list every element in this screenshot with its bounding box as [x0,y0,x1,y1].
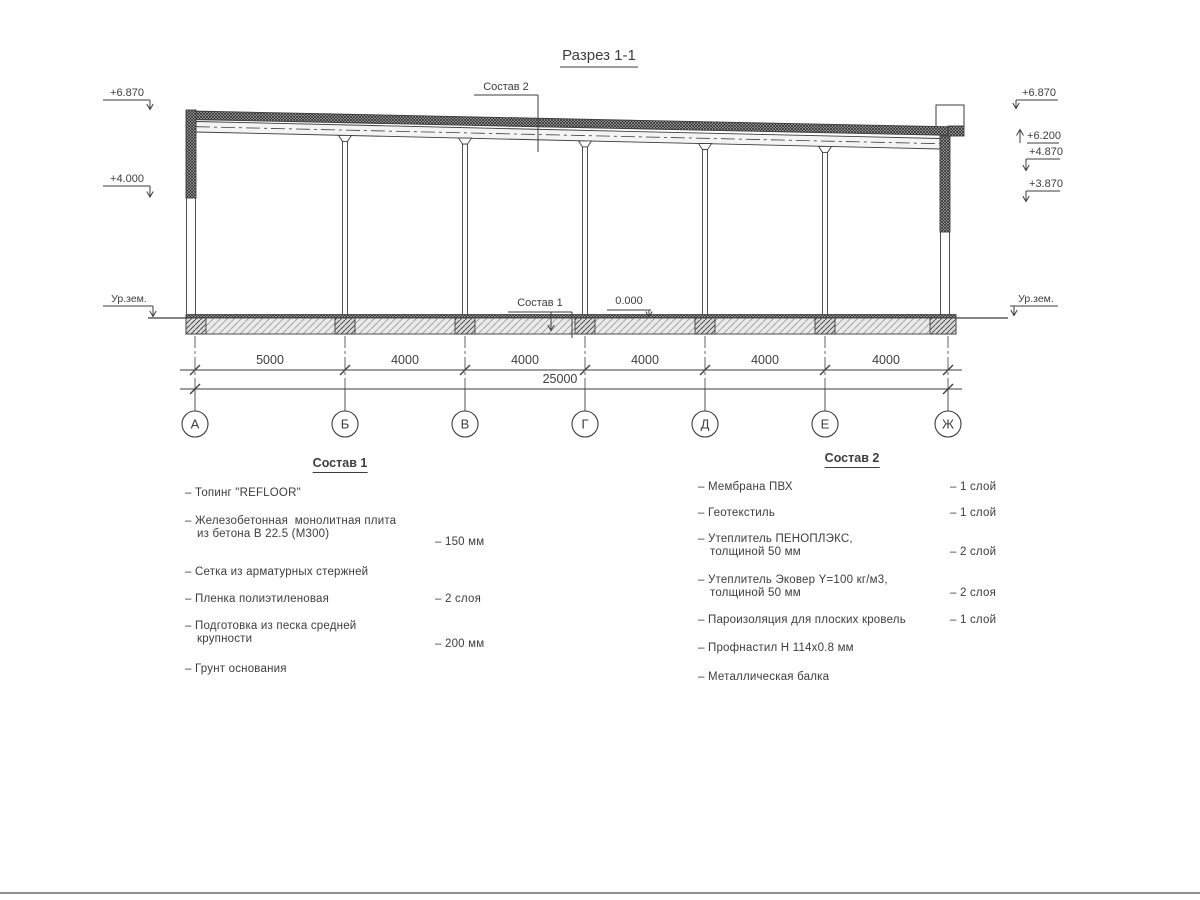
spec1-heading: Состав 1 [313,456,368,473]
spec2-item-line2: толщиной 50 мм [698,546,801,558]
spec2-item: – Геотекстиль [698,507,775,519]
spec2-value: – 2 слоя [950,587,996,599]
spec1-value: – 200 мм [435,638,484,650]
spec2-item-line2: толщиной 50 мм [698,587,801,599]
column [583,147,588,318]
floor-slab [186,318,956,334]
spec1-item: – Топинг "REFLOOR" [185,487,301,499]
drawing-title: Разрез 1-1 [562,47,636,64]
spec2-value: – 1 слой [950,507,996,519]
dim-span-5: 4000 [751,353,779,367]
elev-left-top-mark [103,100,153,110]
elev-right-3-label: +4.870 [1029,146,1063,158]
elev-left-mid-mark [103,186,153,197]
dimension-labels: 5000 4000 4000 4000 4000 4000 25000 [256,353,900,386]
right-wall-lower [941,232,950,318]
left-wall-upper [186,110,196,198]
column-capital [339,135,352,141]
elev-left-top-label: +6.870 [110,87,144,99]
column-capital [819,146,832,152]
spec1-item: – Грунт основания [185,663,287,675]
window-bottom-edge [0,892,1200,894]
column-capital [459,138,472,144]
column [343,141,348,318]
roof-edge-cap [948,126,964,136]
axis-label-b: Б [341,417,350,432]
spec2-item: – Пароизоляция для плоских кровель [698,614,906,626]
spec1-item-line2: крупности [185,633,252,645]
spec2-item: – Металлическая балка [698,671,829,683]
elev-right-1-mark [1013,100,1058,109]
column [463,144,468,318]
dimension-block [180,336,962,437]
elev-left-ground-label: Ур.зем. [111,293,147,305]
drawing-sheet: Разрез 1-1 [0,0,1200,900]
elev-right-1-label: +6.870 [1022,87,1056,99]
spec2-heading: Состав 2 [825,451,880,468]
axis-label-a: А [191,417,200,432]
section-drawing: Разрез 1-1 [0,0,1200,900]
axis-label-g: Г [581,417,588,432]
dim-span-2: 4000 [391,353,419,367]
spec1-item: – Подготовка из песка средней [185,620,356,632]
spec1-item-line2: из бетона В 22.5 (М300) [185,528,329,540]
floor-topping-band [186,315,956,319]
elev-left-ground-mark [103,306,156,317]
dim-span-3: 4000 [511,353,539,367]
spec2-value: – 2 слой [950,546,996,558]
callout-sostav2-label: Состав 2 [483,81,529,93]
elev-right-ground-mark [1010,306,1058,316]
column-capital [579,141,592,147]
footing [575,318,595,334]
footing [930,318,956,334]
callout-sostav1-label: Состав 1 [517,297,563,309]
column-capital [699,144,712,150]
axis-label-e: Е [821,417,830,432]
elev-right-4-label: +3.870 [1029,178,1063,190]
dim-span-4: 4000 [631,353,659,367]
axis-label-v: В [461,417,470,432]
footing [695,318,715,334]
dim-total: 25000 [543,372,578,386]
left-wall-lower [187,198,196,318]
spec1-item: – Пленка полиэтиленовая [185,593,329,605]
spec2-item: – Утеплитель ПЕНОПЛЭКС, [698,533,853,545]
spec1-item: – Сетка из арматурных стержней [185,566,368,578]
column [823,152,828,318]
columns [339,135,832,318]
spec2-item: – Профнастил Н 114х0.8 мм [698,642,854,654]
spec1-value: – 150 мм [435,536,484,548]
spec1-item: – Железобетонная монолитная плита [185,515,396,527]
spec2-item: – Утеплитель Эковер Y=100 кг/м3, [698,574,888,586]
elev-right-3-mark [1023,159,1060,171]
spec1-value: – 2 слоя [435,593,481,605]
roof-parapet-box [936,105,964,127]
column [703,150,708,318]
footing [186,318,206,334]
building-section [148,105,1008,334]
axis-label-zh: Ж [942,417,954,432]
elev-left-mid-label: +4.000 [110,173,144,185]
right-wall-upper [940,136,950,232]
axis-label-d: Д [701,417,710,432]
dim-span-1: 5000 [256,353,284,367]
spec2-value: – 1 слой [950,614,996,626]
footing [815,318,835,334]
spec2-item: – Мембрана ПВХ [698,481,793,493]
footing [455,318,475,334]
elev-right-ground-label: Ур.зем. [1018,293,1054,305]
dim-span-6: 4000 [872,353,900,367]
elev-right-4-mark [1023,191,1060,202]
footing [335,318,355,334]
elev-right-2-label: +6.200 [1027,130,1061,142]
elevation-marks-left [103,100,156,317]
zero-level-label: 0.000 [615,295,643,307]
axis-bubbles [182,389,961,437]
spec2-value: – 1 слой [950,481,996,493]
